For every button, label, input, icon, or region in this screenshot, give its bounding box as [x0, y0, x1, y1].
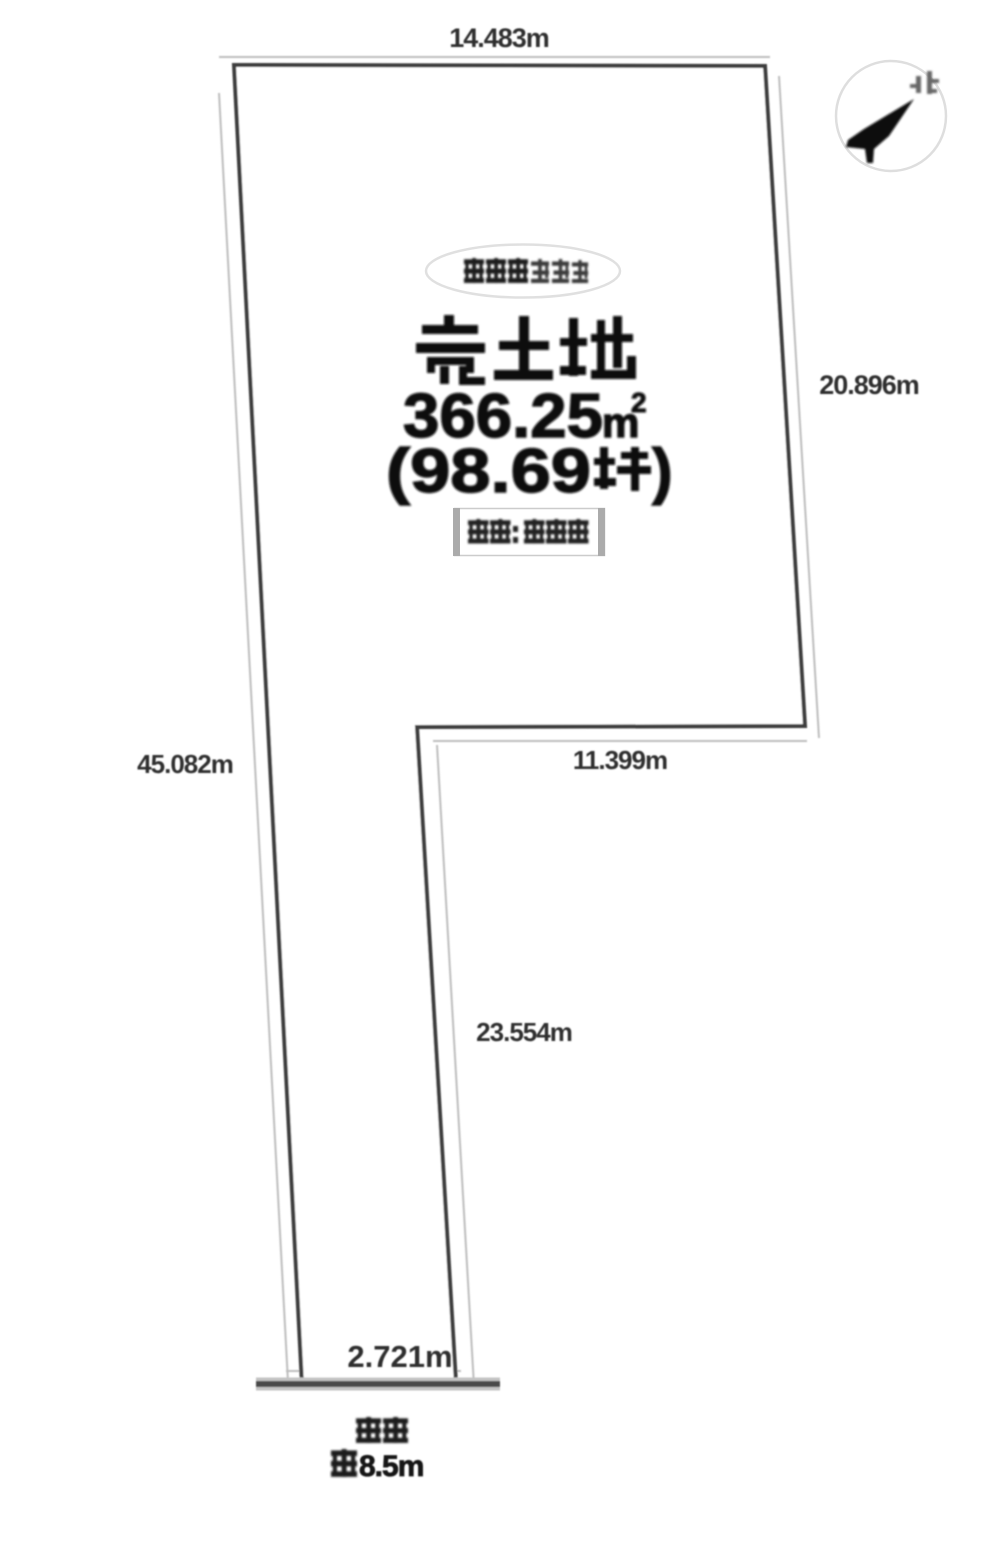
svg-text:11.399m: 11.399m: [573, 745, 667, 775]
svg-text:8.5m: 8.5m: [359, 1450, 423, 1483]
svg-text:(98.69: (98.69: [386, 437, 591, 506]
svg-text:2: 2: [631, 387, 647, 418]
svg-text:20.896m: 20.896m: [819, 370, 919, 400]
svg-text:45.082m: 45.082m: [137, 749, 233, 779]
svg-text:2.721m: 2.721m: [347, 1339, 452, 1374]
svg-text:): ): [652, 437, 673, 506]
svg-text:14.483m: 14.483m: [449, 23, 549, 53]
svg-text:23.554m: 23.554m: [476, 1017, 572, 1047]
